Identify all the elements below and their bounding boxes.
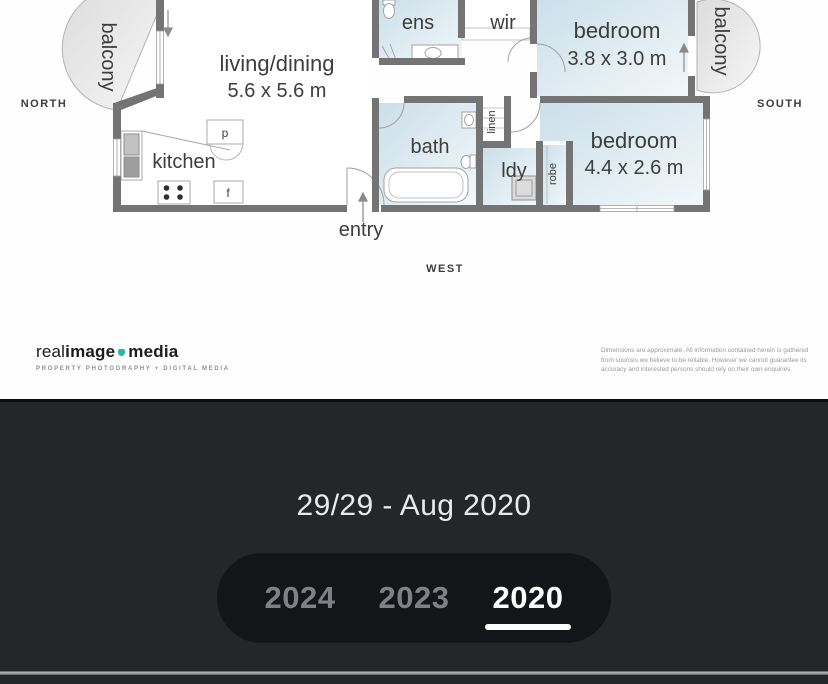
stove-icon <box>158 181 190 204</box>
entry-label: entry <box>339 219 383 241</box>
year-tab-2020[interactable]: 2020 <box>485 553 571 643</box>
bathtub-icon <box>384 168 468 202</box>
logo-image: image <box>65 342 115 361</box>
disclaimer-line-3: accuracy and interested persons should r… <box>601 365 816 375</box>
logo-dot-icon <box>118 349 125 356</box>
pantry-label: p <box>222 126 229 140</box>
logo-media: media <box>128 342 178 361</box>
year-tab-2023[interactable]: 2023 <box>371 553 457 643</box>
compass-south-label: SOUTH <box>757 98 803 110</box>
viewer-controls-panel: 29/29 - Aug 2020 2024 2023 2020 <box>0 399 828 684</box>
disclaimer-text: Dimensions are approximate. All informat… <box>601 346 816 375</box>
bedroom-east-label: bedroom <box>574 18 661 43</box>
timeline-scrubber[interactable] <box>0 671 828 675</box>
disclaimer-line-2: from sources we believe to be reliable. … <box>601 356 816 366</box>
linen-label: linen <box>486 110 498 133</box>
compass-north-label: NORTH <box>21 98 68 110</box>
balcony-north-label: balcony <box>97 23 119 92</box>
photo-counter: 29/29 - Aug 2020 <box>0 402 828 522</box>
ens-basin-icon <box>425 48 441 59</box>
laundry-label: ldy <box>501 160 527 182</box>
floorplan-drawing: living/dining 5.6 x 5.6 m kitchen ens wi… <box>0 0 828 300</box>
balcony-south-label: balcony <box>710 7 732 76</box>
bedroom-se-dims: 4.4 x 2.6 m <box>585 157 684 179</box>
realimage-media-logo: realimagemedia PROPERTY PHOTOGRAPHY + DI… <box>36 342 230 372</box>
logo-real: real <box>36 342 65 361</box>
bath-label: bath <box>411 136 450 158</box>
living-dims: 5.6 x 5.6 m <box>228 80 327 102</box>
photo-viewer-screen: living/dining 5.6 x 5.6 m kitchen ens wi… <box>0 0 828 684</box>
disclaimer-line-1: Dimensions are approximate. All informat… <box>601 346 816 356</box>
year-tab-2024[interactable]: 2024 <box>257 553 343 643</box>
year-selector-pill: 2024 2023 2020 <box>217 553 611 643</box>
wir-label: wir <box>489 12 516 34</box>
robe-label: robe <box>547 163 559 185</box>
logo-tagline: PROPERTY PHOTOGRAPHY + DIGITAL MEDIA <box>36 366 230 372</box>
floorplan-photo[interactable]: living/dining 5.6 x 5.6 m kitchen ens wi… <box>0 0 828 399</box>
bath-basin-icon <box>465 115 474 126</box>
kitchen-label: kitchen <box>152 151 215 173</box>
ens-label: ens <box>402 12 434 34</box>
bedroom-east-dims: 3.8 x 3.0 m <box>568 48 667 70</box>
compass-west-label: WEST <box>426 263 464 275</box>
living-label: living/dining <box>220 51 335 76</box>
bedroom-se-label: bedroom <box>591 128 678 153</box>
